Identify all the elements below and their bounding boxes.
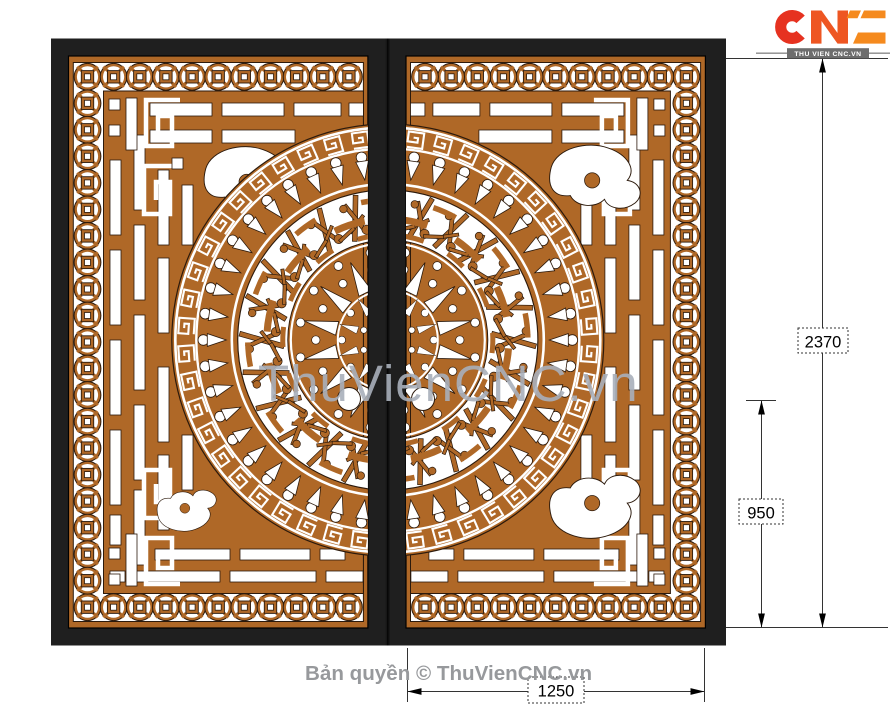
svg-text:ThuVienCNC.vn: ThuVienCNC.vn — [258, 355, 639, 412]
svg-text:950: 950 — [747, 505, 775, 523]
svg-text:THU VIEN CNC.VN: THU VIEN CNC.VN — [794, 51, 861, 58]
svg-text:Bản quyền © ThuVienCNC.vn: Bản quyền © ThuVienCNC.vn — [305, 662, 592, 685]
svg-text:1250: 1250 — [538, 683, 575, 701]
svg-text:2370: 2370 — [805, 334, 842, 352]
